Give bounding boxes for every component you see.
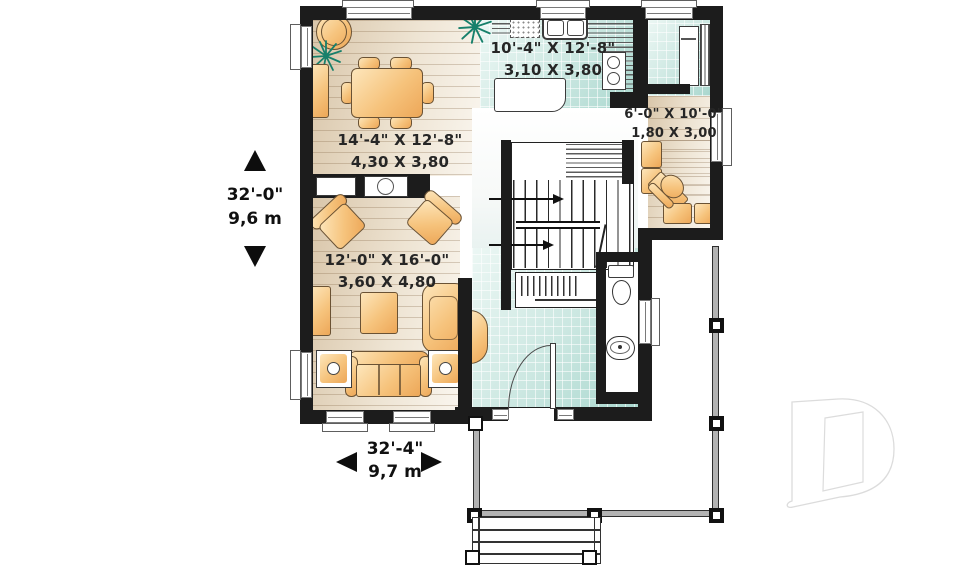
den-desk — [641, 141, 662, 168]
window-sill — [651, 298, 660, 346]
window-sill — [290, 24, 301, 70]
wall-landing-right — [622, 140, 634, 184]
wall-powder-bottom — [596, 392, 652, 404]
chaise-seat — [429, 296, 458, 340]
porch-column — [709, 318, 724, 333]
sink-basin — [547, 20, 564, 36]
dimension-arrow-down — [244, 246, 266, 267]
step-line — [473, 541, 600, 543]
dining-room-imperial: 14'-4" X 12'-8" — [327, 130, 473, 152]
stair-rail — [516, 221, 600, 229]
stove-circle — [377, 178, 394, 195]
dimension-arrow-right — [421, 452, 442, 472]
wall-powder-left — [596, 252, 606, 404]
living-room-metric: 3,60 X 4,80 — [322, 272, 452, 294]
step-post — [465, 550, 480, 565]
table-lamp-icon — [439, 362, 452, 375]
den-label: 6'-0" X 10'-0" 1,80 X 3,00 — [618, 106, 730, 144]
front-door — [550, 343, 556, 409]
porch-column — [709, 416, 724, 431]
faucet-icon — [618, 345, 622, 349]
dimension-arrow-up — [244, 150, 266, 171]
height-dimension-imperial: 32'-0" — [200, 184, 310, 208]
sink-basin — [567, 20, 584, 36]
fridge-divider — [681, 38, 696, 40]
watermark-d-logo — [780, 390, 910, 514]
stair-direction-arrow — [489, 244, 543, 246]
window-sill — [322, 423, 368, 432]
end-table — [316, 350, 352, 388]
kitchen-island — [494, 78, 566, 112]
living-room-label: 12'-0" X 16'-0" 3,60 X 4,80 — [322, 250, 452, 294]
wall-stair-left — [501, 140, 511, 310]
kitchen-imperial: 10'-4" X 12'-8" — [488, 38, 618, 60]
den-metric: 1,80 X 3,00 — [618, 125, 730, 144]
living-side-window — [301, 352, 312, 398]
sofa-cushion-line — [378, 365, 380, 395]
sofa-cushion-line — [399, 365, 401, 395]
dining-table — [351, 68, 423, 118]
kitchen-metric: 3,10 X 3,80 — [488, 60, 618, 82]
coffee-table — [360, 292, 398, 334]
step-line — [473, 553, 600, 555]
stair-arrow-head — [553, 194, 564, 204]
dining-room-metric: 4,30 X 3,80 — [327, 152, 473, 174]
door-sidelight — [492, 409, 509, 420]
wall-bottom-den — [638, 228, 723, 240]
living-room-imperial: 12'-0" X 16'-0" — [322, 250, 452, 272]
porch-column — [468, 416, 483, 431]
refrigerator — [679, 26, 699, 86]
sofa-seat — [356, 364, 421, 397]
living-window — [326, 411, 364, 423]
bathroom-sink — [606, 336, 635, 360]
floor-plan-canvas: 14'-4" X 12'-8" 4,30 X 3,80 10'-4" X 12'… — [0, 0, 960, 569]
stair-arrow-head — [543, 240, 554, 250]
louver-door — [700, 24, 710, 86]
front-door-opening — [508, 408, 554, 421]
den-imperial: 6'-0" X 10'-0" — [618, 106, 730, 125]
dining-room-label: 14'-4" X 12'-8" 4,30 X 3,80 — [327, 130, 473, 174]
dining-window — [346, 7, 412, 19]
porch-column — [709, 508, 724, 523]
step-line — [473, 529, 600, 531]
window-sill — [389, 423, 435, 432]
door-sidelight — [557, 409, 574, 420]
porch-rail — [473, 426, 480, 516]
window-sill — [290, 350, 301, 400]
porch-rail — [712, 246, 719, 517]
wall-den-closet-stub — [648, 84, 690, 94]
toilet-tank — [608, 265, 634, 278]
wall-kitchen-den-divider — [633, 20, 648, 96]
living-window — [393, 411, 431, 423]
kitchen-label: 10'-4" X 12'-8" 3,10 X 3,80 — [488, 38, 618, 82]
wall-living-entry-divider — [458, 278, 472, 411]
cabinet — [316, 177, 356, 196]
dining-side-window — [301, 26, 312, 68]
kitchen-window — [540, 7, 586, 19]
height-dimension-metric: 9,6 m — [200, 208, 310, 232]
closet-hangers — [521, 276, 577, 296]
entry-side-window — [639, 300, 651, 344]
sofa — [345, 351, 432, 399]
table-lamp-icon — [327, 362, 340, 375]
stair-direction-arrow — [489, 198, 553, 200]
closet-shelf-line — [535, 299, 597, 301]
step-post — [582, 550, 597, 565]
den-window — [645, 7, 693, 19]
